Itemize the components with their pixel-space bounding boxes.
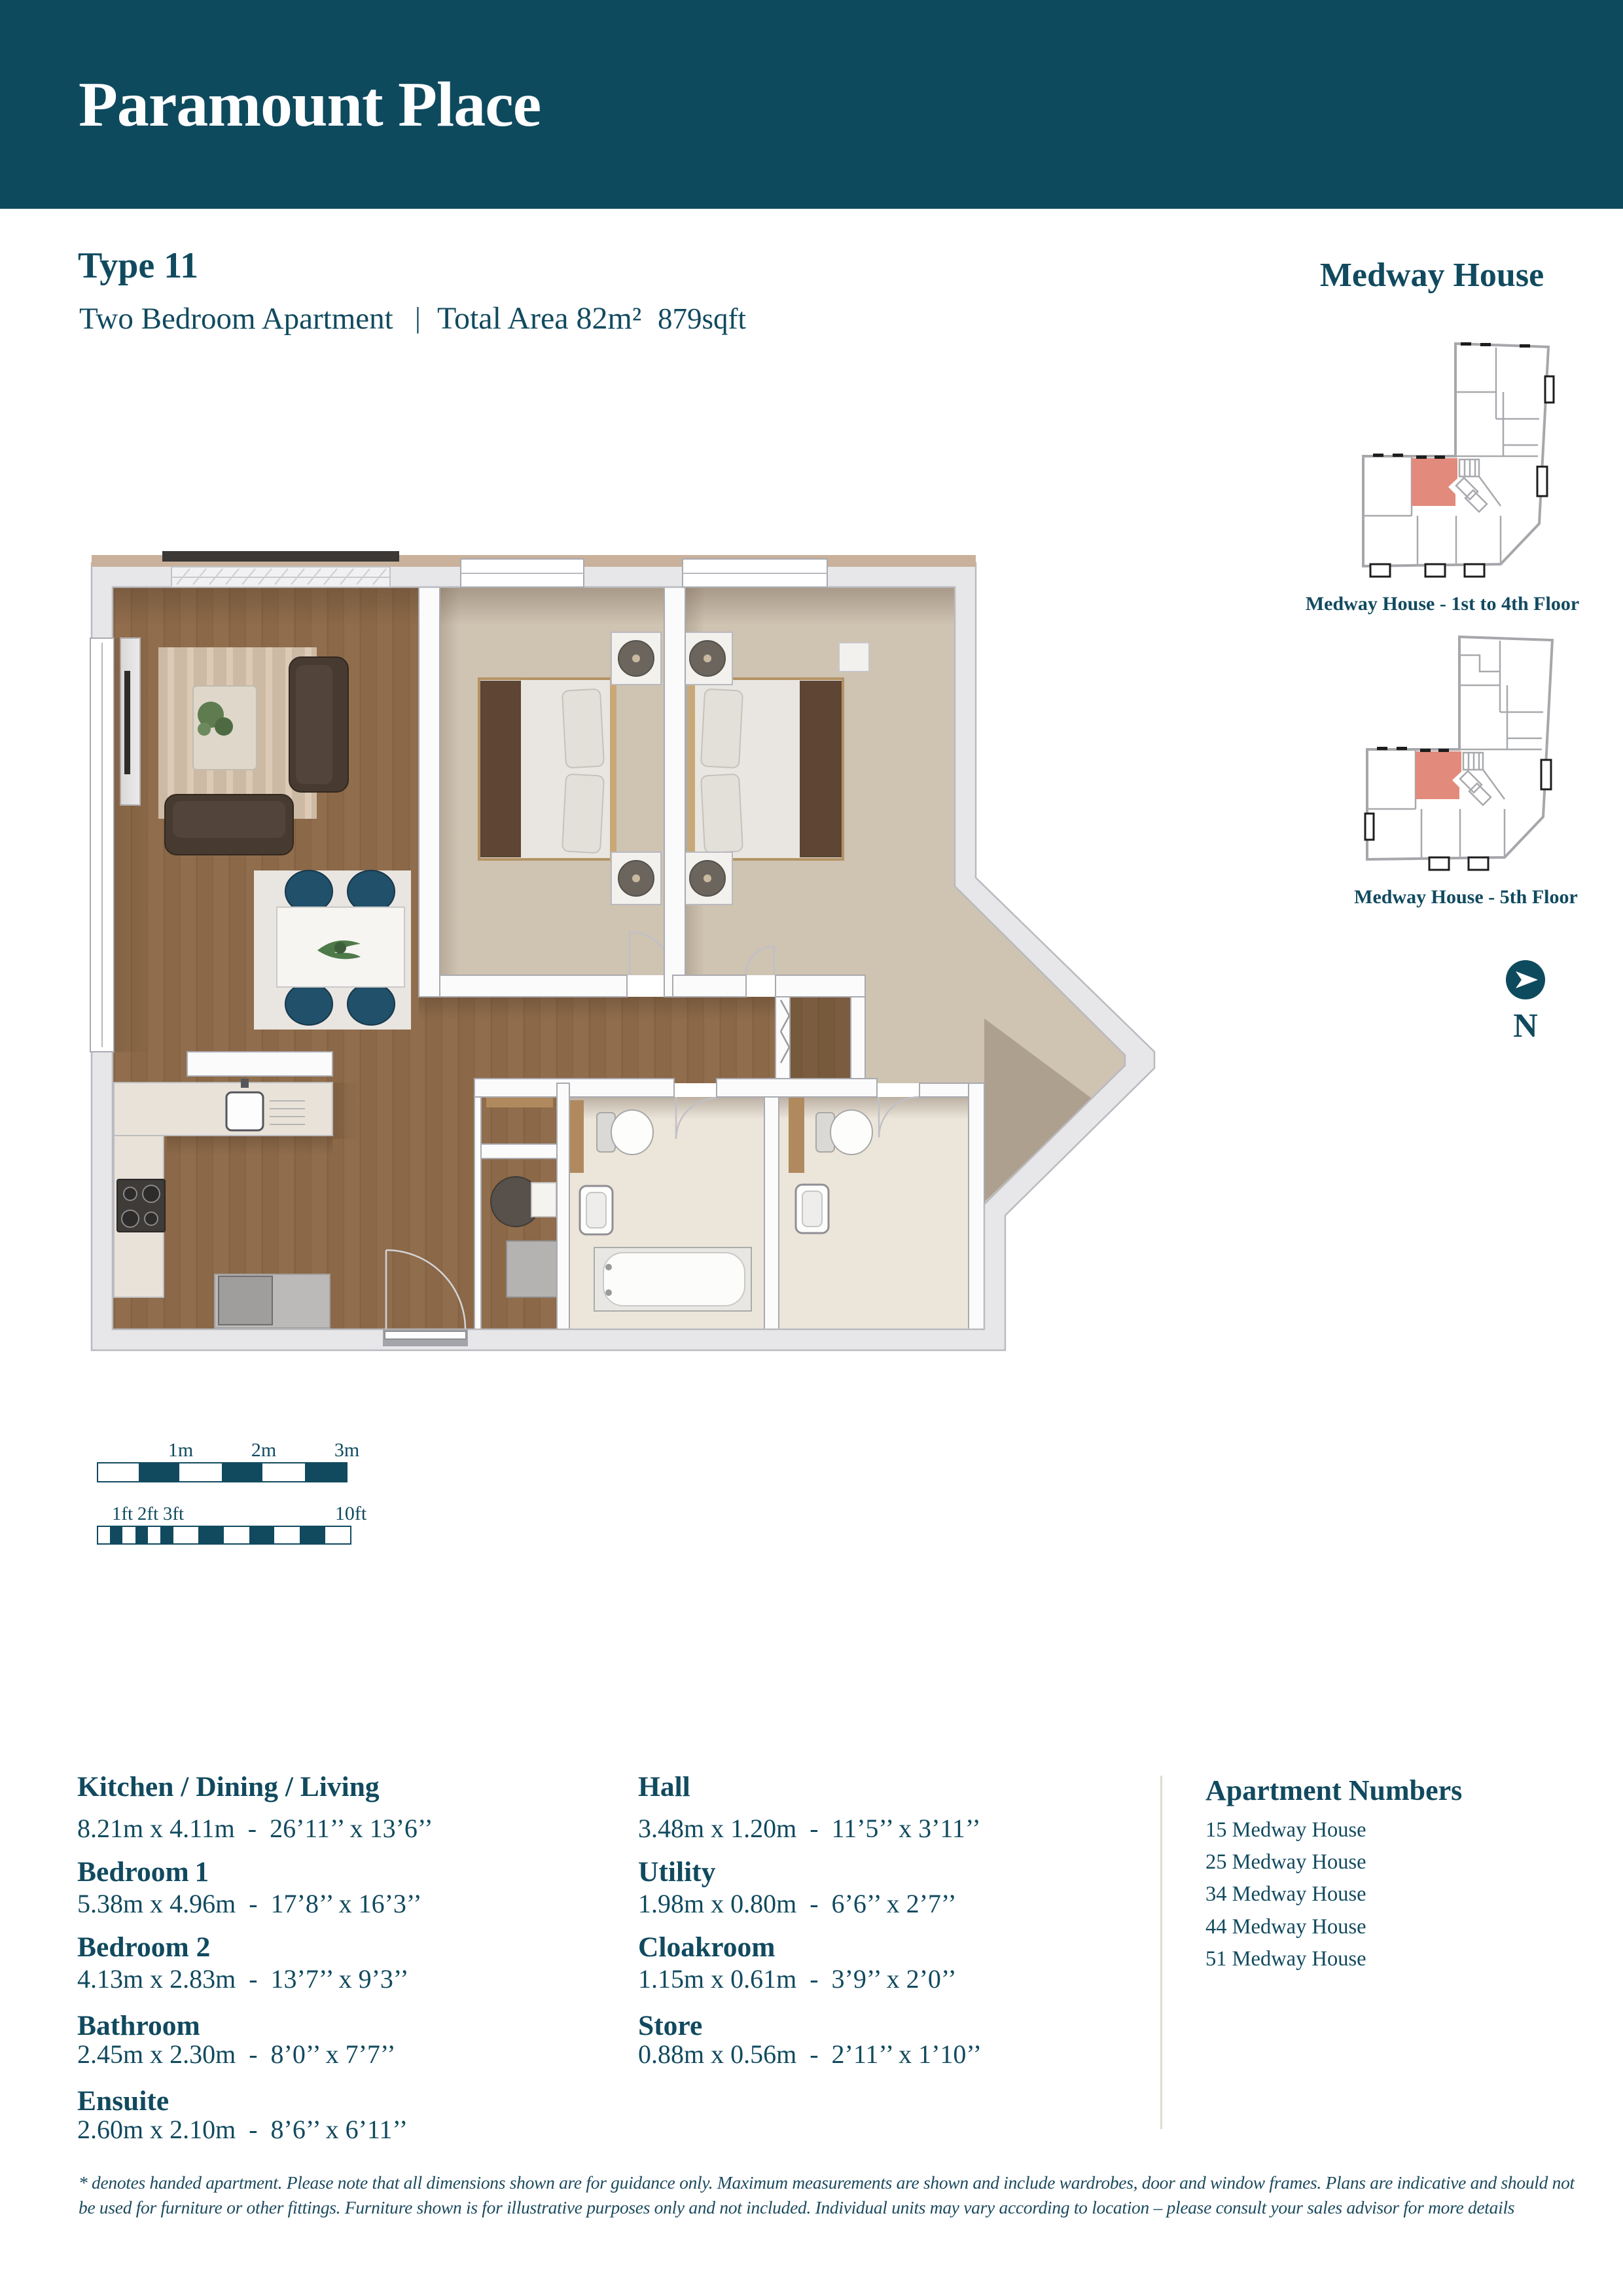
svg-text:Cloakroom: Cloakroom — [638, 1931, 775, 1963]
svg-text:4.13m x 2.83m - 13’7’’ x 9’3: 4.13m x 2.83m - 13’7’’ x 9’3’’ — [77, 1964, 409, 1994]
svg-text:8.21m x 4.11m - 26’11’’ x 13: 8.21m x 4.11m - 26’11’’ x 13’6’’ — [77, 1814, 433, 1843]
svg-text:be used for furniture or other: be used for furniture or other fittings.… — [79, 2197, 1514, 2217]
svg-text:Medway House - 1st to 4th Floo: Medway House - 1st to 4th Floor — [1306, 593, 1579, 615]
svg-text:Ensuite: Ensuite — [77, 2085, 169, 2117]
svg-text:15 Medway House: 15 Medway House — [1205, 1818, 1366, 1842]
svg-text:Apartment Numbers: Apartment Numbers — [1205, 1774, 1462, 1806]
svg-text:Total Area 82m²: Total Area 82m² — [437, 301, 641, 336]
svg-text:Bedroom 1: Bedroom 1 — [77, 1856, 209, 1888]
svg-text:Hall: Hall — [638, 1771, 690, 1803]
svg-text:Bathroom: Bathroom — [77, 2010, 200, 2041]
svg-text:3.48m x 1.20m - 11’5’’ x 3’1: 3.48m x 1.20m - 11’5’’ x 3’11’’ — [638, 1814, 981, 1843]
svg-text:N: N — [1513, 1007, 1538, 1045]
svg-text:Store: Store — [638, 2010, 702, 2041]
svg-text:0.88m x 0.56m - 2’11’’ x 1’1: 0.88m x 0.56m - 2’11’’ x 1’10’’ — [638, 2039, 982, 2069]
svg-text:1m: 1m — [168, 1439, 193, 1461]
svg-text:2.45m x 2.30m - 8’0’’ x 7’7’: 2.45m x 2.30m - 8’0’’ x 7’7’’ — [77, 2039, 396, 2069]
svg-text:879sqft: 879sqft — [658, 302, 746, 335]
svg-text:Medway House: Medway House — [1320, 257, 1544, 294]
svg-text:1.98m x 0.80m - 6’6’’ x 2’7’: 1.98m x 0.80m - 6’6’’ x 2’7’’ — [638, 1889, 957, 1918]
svg-text:Paramount Place: Paramount Place — [79, 69, 541, 140]
svg-text:Type 11: Type 11 — [78, 245, 198, 286]
svg-text:5.38m x 4.96m - 17’8’’ x 16’: 5.38m x 4.96m - 17’8’’ x 16’3’’ — [77, 1889, 422, 1918]
svg-text:Two Bedroom Apartment: Two Bedroom Apartment — [79, 302, 393, 336]
svg-text:Utility: Utility — [638, 1856, 716, 1888]
svg-text:3ft: 3ft — [163, 1503, 184, 1524]
svg-text:|: | — [415, 302, 421, 334]
svg-text:25 Medway House: 25 Medway House — [1205, 1850, 1366, 1874]
svg-text:3m: 3m — [334, 1439, 359, 1461]
svg-text:Medway House - 5th Floor: Medway House - 5th Floor — [1354, 886, 1578, 908]
svg-text:2m: 2m — [251, 1439, 276, 1461]
svg-text:Kitchen / Dining / Living: Kitchen / Dining / Living — [77, 1771, 380, 1803]
svg-text:Bedroom 2: Bedroom 2 — [77, 1931, 210, 1963]
svg-text:2.60m x 2.10m - 8’6’’ x 6’11: 2.60m x 2.10m - 8’6’’ x 6’11’’ — [77, 2115, 408, 2144]
svg-text:2ft: 2ft — [137, 1503, 158, 1524]
svg-text:1.15m x 0.61m - 3’9’’ x 2’0’: 1.15m x 0.61m - 3’9’’ x 2’0’’ — [638, 1964, 957, 1994]
svg-text:1ft: 1ft — [112, 1503, 133, 1524]
svg-text:34 Medway House: 34 Medway House — [1205, 1882, 1366, 1906]
svg-text:* denotes handed apartment. Pl: * denotes handed apartment. Please note … — [79, 2172, 1576, 2193]
svg-text:51 Medway House: 51 Medway House — [1205, 1947, 1366, 1971]
svg-text:10ft: 10ft — [335, 1503, 367, 1524]
svg-text:44 Medway House: 44 Medway House — [1205, 1915, 1366, 1939]
